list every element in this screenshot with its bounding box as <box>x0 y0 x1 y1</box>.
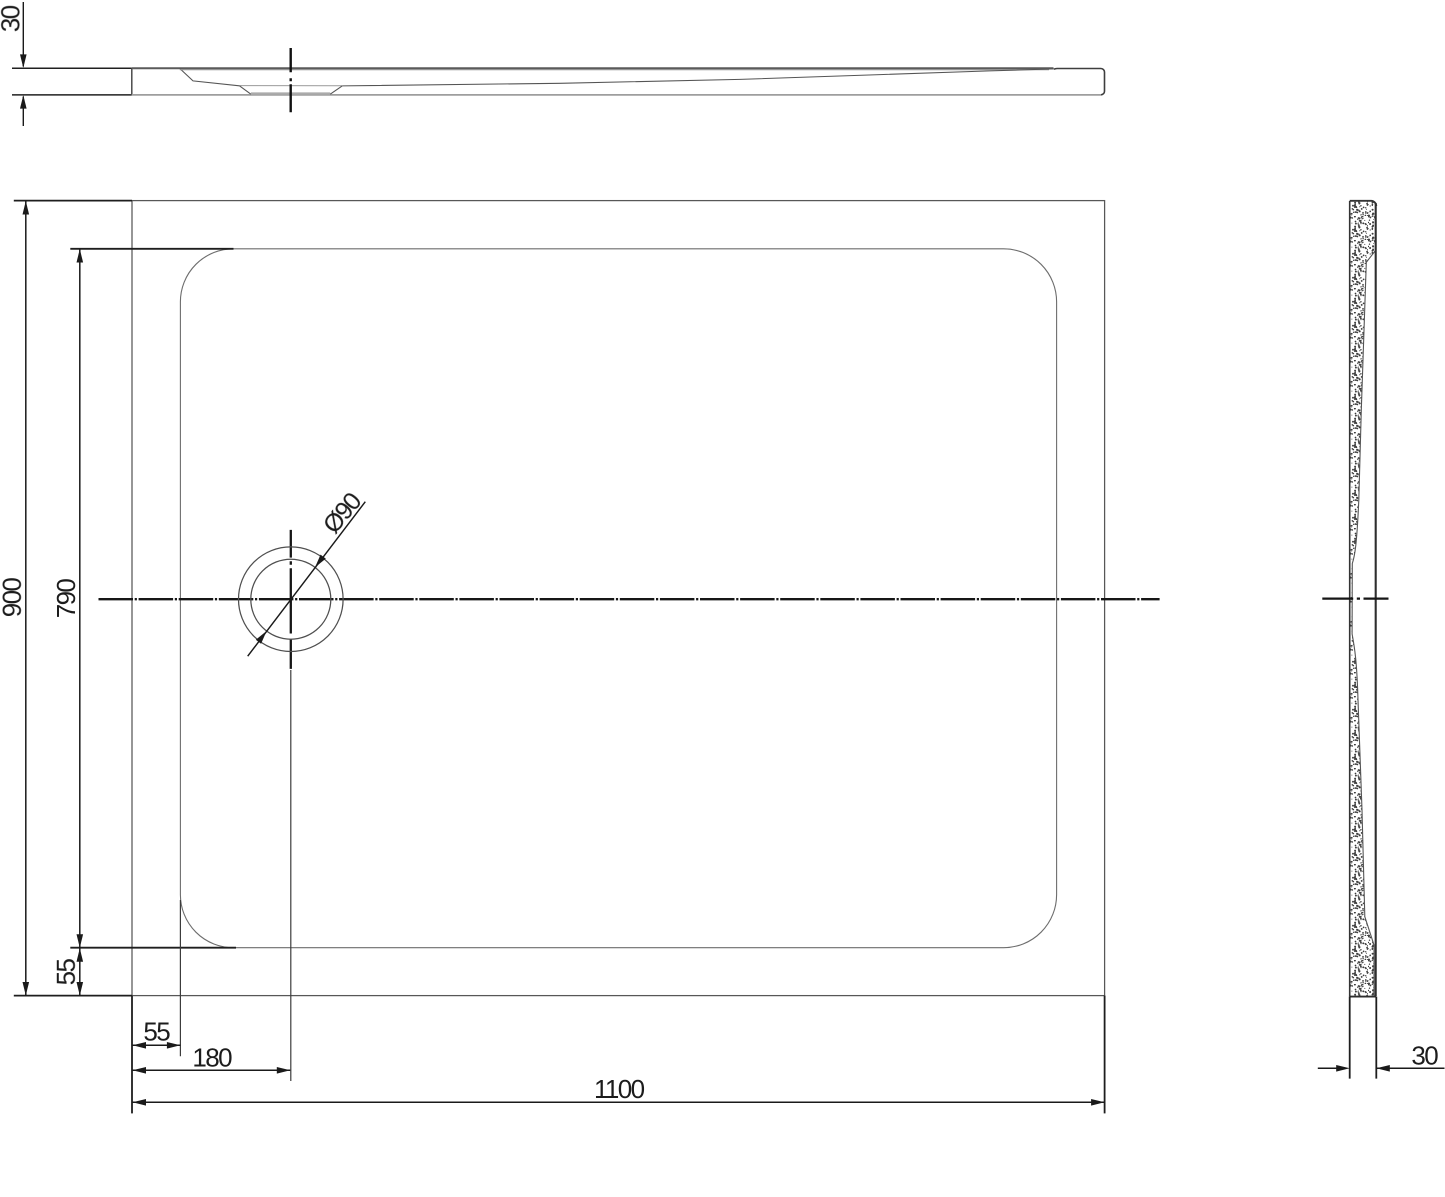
svg-text:55: 55 <box>143 1017 170 1047</box>
svg-text:30: 30 <box>0 5 25 32</box>
svg-text:1100: 1100 <box>594 1074 645 1104</box>
svg-text:30: 30 <box>1411 1041 1438 1071</box>
svg-text:180: 180 <box>192 1043 232 1073</box>
svg-text:900: 900 <box>0 578 27 618</box>
svg-text:55: 55 <box>51 959 81 986</box>
svg-text:790: 790 <box>51 579 81 619</box>
